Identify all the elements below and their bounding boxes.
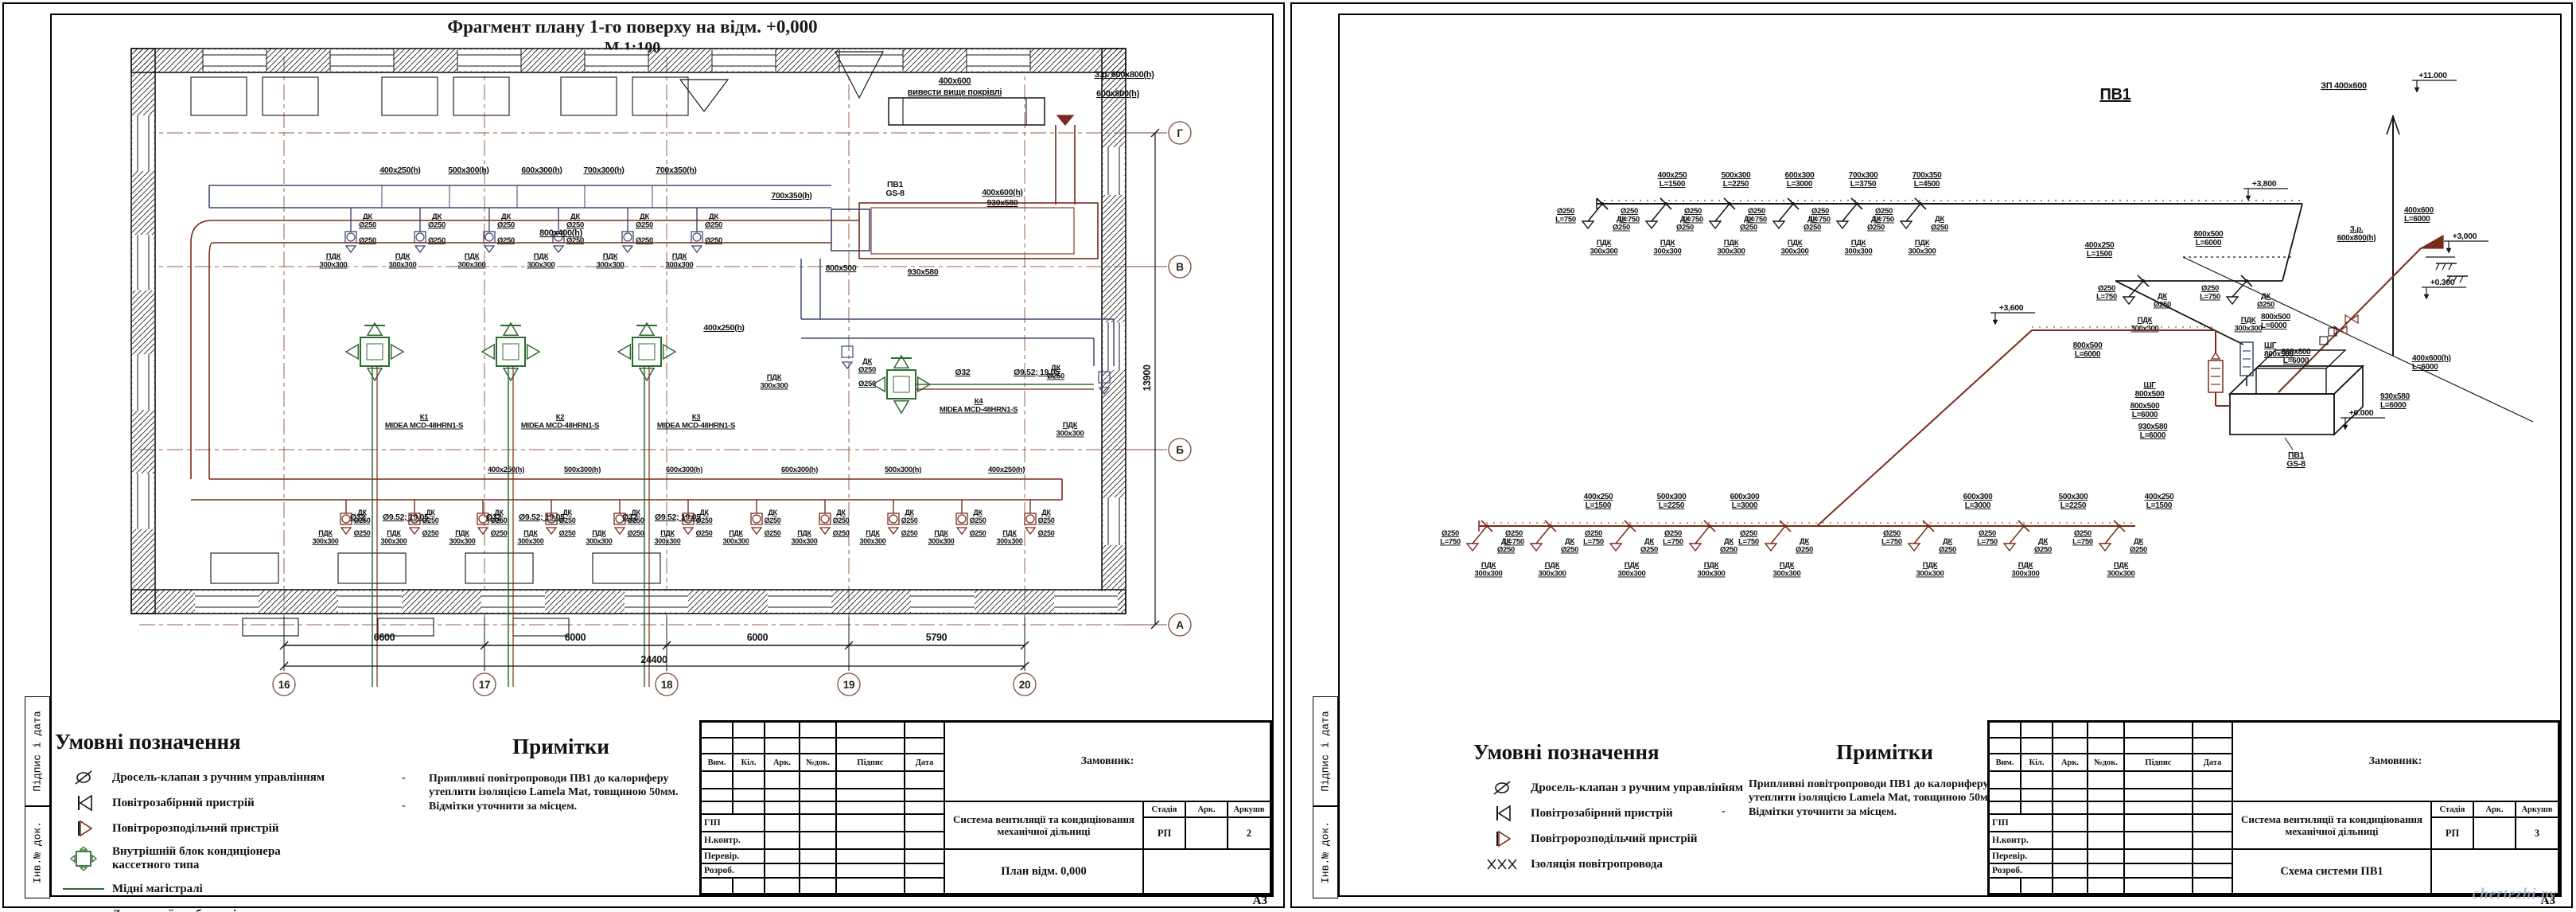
svg-text:Ø250: Ø250 [1038,516,1055,524]
titleblock-cell [2088,832,2124,849]
svg-text:Ø250: Ø250 [2098,284,2115,293]
titleblock-header: Дата [905,754,944,771]
legend-item-label: Повітророзподільчий пристрій [112,822,278,836]
svg-text:ЗП 400x600: ЗП 400x600 [2321,81,2367,91]
titleblock-cell [2021,878,2053,894]
svg-text:ПДК: ПДК [395,252,411,261]
svg-text:400x250: 400x250 [1658,171,1688,180]
svg-text:ПДК: ПДК [1002,529,1017,537]
svg-text:Ø32: Ø32 [486,513,501,522]
note-item: -Відмітки уточнити за місцем. [402,800,720,813]
svg-text:ПДК: ПДК [1704,561,1719,570]
svg-text:GS-8: GS-8 [885,189,905,198]
svg-text:ДК: ДК [862,357,872,366]
svg-text:ПДК: ПДК [592,529,606,537]
titleblock-header: Арк. [765,754,800,771]
svg-text:ПДК: ПДК [318,529,333,537]
svg-text:L=1500: L=1500 [1586,501,1612,510]
svg-text:L=750: L=750 [1683,216,1703,224]
svg-text:Ø250: Ø250 [1875,207,1893,216]
svg-text:800x500: 800x500 [2261,313,2291,322]
svg-text:L=750: L=750 [1663,538,1683,547]
svg-text:Ø250: Ø250 [1748,207,1765,216]
svg-text:ПДК: ПДК [767,373,782,382]
intake-icon [58,791,109,815]
sheet-scheme: Підпис і дата Інв.№ док. ПВ1Ø250L=750ДКØ… [1290,2,2573,908]
titleblock-cell [2053,722,2088,738]
svg-text:MIDEA MCD-48HRN1-S: MIDEA MCD-48HRN1-S [385,422,463,431]
titleblock-cell [2021,801,2053,814]
svg-text:ПДК: ПДК [326,252,341,261]
svg-text:L=750: L=750 [1555,216,1576,224]
svg-text:Ø250: Ø250 [359,221,376,230]
titleblock-cell [2124,771,2193,789]
intake-icon [1477,801,1527,825]
legend-item: Повітророзподільчий пристрій [1473,827,1815,851]
svg-text:ДК: ДК [1800,537,1809,546]
svg-text:300x300: 300x300 [389,261,417,270]
titleblock-cell [836,814,905,832]
svg-text:Ø250: Ø250 [1811,207,1829,216]
svg-text:300x300: 300x300 [1845,247,1873,256]
drawing-canvas: Підпис і дата Інв.№ док. Фрагмент плану … [0,0,2576,912]
svg-text:Ø250: Ø250 [1979,529,1996,538]
titleblock-cell [701,878,733,894]
titleblock-cell [2193,789,2232,801]
titleblock-cell [733,789,765,801]
titleblock-drawing-name: Схема системи ПВ1 [2232,849,2431,894]
titleblock-cell [1989,789,2021,801]
titleblock-cell [2053,771,2088,789]
legend-item: Повітророзподільчий пристрій [55,817,397,840]
titleblock-cell [701,789,733,801]
titleblock-cell [765,738,800,754]
titleblock-cell [2124,814,2193,832]
titleblock-header: Кіл. [2021,754,2053,771]
svg-text:ПДК: ПДК [2018,561,2033,570]
svg-text:К3: К3 [692,413,700,422]
damper-icon [1477,776,1527,800]
svg-text:300x300: 300x300 [655,537,681,545]
svg-text:6000: 6000 [565,632,586,643]
svg-text:700x300(h): 700x300(h) [583,166,624,175]
svg-text:400x250: 400x250 [1584,493,1614,501]
titleblock-cell [2124,849,2193,863]
svg-text:800x500: 800x500 [826,263,857,273]
titleblock-cell [1989,771,2021,789]
svg-text:300x300: 300x300 [597,261,625,270]
titleblock-cell [2124,722,2193,738]
svg-text:300x300: 300x300 [1781,247,1809,256]
titleblock-cell [905,849,944,863]
svg-text:800x500: 800x500 [2130,402,2161,411]
svg-text:MIDEA MCD-48HRN1-S: MIDEA MCD-48HRN1-S [940,406,1018,415]
svg-text:ПДК: ПДК [1063,421,1078,430]
titleblock-cell [2053,801,2088,814]
titleblock-cell [836,722,905,738]
titleblock-cell [800,832,836,849]
svg-text:Ø250: Ø250 [628,529,644,537]
plan-titleblock: Вим.Кіл.Арк.№док.ПідписДатаГІПН.контр.Пе… [699,720,1272,895]
scheme-titleblock: Вим.Кіл.Арк.№док.ПідписДатаГІПН.контр.Пе… [1987,720,2560,895]
legend-item: Повітрозабірний пристрій [55,791,397,815]
svg-text:300x300: 300x300 [586,537,613,545]
svg-text:MIDEA MCD-48HRN1-S: MIDEA MCD-48HRN1-S [521,422,599,431]
svg-text:ДК: ДК [1943,537,1952,546]
titleblock-cell [800,814,836,832]
titleblock-drawing-name: План відм. 0,000 [944,849,1143,894]
titleblock-sheet-header: Арк. [2473,801,2516,817]
svg-text:300x300: 300x300 [1475,570,1503,579]
titleblock-role: Н.контр. [701,832,765,849]
svg-text:К4: К4 [975,397,983,406]
notes-title: Примітки [402,735,720,759]
titleblock-cell [2088,771,2124,789]
note-text: Відмітки уточнити за місцем. [429,800,577,813]
svg-text:ДК: ДК [836,509,846,516]
titleblock-role: Розроб. [701,863,765,878]
svg-text:300x300: 300x300 [1539,570,1566,579]
svg-text:L=750: L=750 [1874,216,1894,224]
svg-text:ПДК: ПДК [465,252,480,261]
svg-text:ПДК: ПДК [387,529,401,537]
svg-text:300x300: 300x300 [1773,570,1801,579]
svg-text:Ø250: Ø250 [2257,301,2274,310]
svg-text:13900: 13900 [1142,364,1153,392]
legend-item-label: Повітрозабірний пристрій [112,797,255,810]
svg-text:L=750: L=750 [1583,538,1604,547]
svg-text:400x600(h): 400x600(h) [2412,354,2451,363]
titleblock-cell [765,814,800,832]
titleblock-role: ГІП [1989,814,2053,832]
titleblock-sheets-header: Аркушв [2516,801,2558,817]
svg-text:500x300(h): 500x300(h) [885,466,921,474]
svg-text:6600: 6600 [374,632,395,643]
svg-text:500x300: 500x300 [1657,493,1687,501]
svg-text:600x300(h): 600x300(h) [666,466,702,474]
svg-text:А: А [1176,619,1184,631]
titleblock-cell [800,722,836,738]
svg-text:300x300: 300x300 [1909,247,1936,256]
svg-text:GS-8: GS-8 [2286,459,2306,469]
titleblock-cell [2053,832,2088,849]
titleblock-cell [2124,738,2193,754]
titleblock-role: Перевір. [1989,849,2053,863]
svg-text:ПДК: ПДК [660,529,675,537]
titleblock-cell [2021,771,2053,789]
svg-text:400x600(h): 400x600(h) [982,188,1022,197]
svg-text:ПДК: ПДК [1923,561,1938,570]
svg-text:Ø250: Ø250 [1931,224,1948,232]
svg-text:300x300: 300x300 [2131,325,2159,333]
svg-text:L=3000: L=3000 [1787,180,1813,189]
titleblock-header: Кіл. [733,754,765,771]
svg-text:ДК: ДК [2038,537,2048,546]
svg-text:L=1500: L=1500 [2146,501,2173,510]
titleblock-header: Вим. [701,754,733,771]
svg-text:300x300: 300x300 [458,261,486,270]
svg-text:Ø250: Ø250 [636,221,653,230]
svg-text:L=4500: L=4500 [1914,180,1940,189]
svg-text:300x300: 300x300 [1590,247,1618,256]
svg-text:Ø250: Ø250 [497,236,515,245]
svg-text:Ø250: Ø250 [1804,224,1821,232]
svg-text:20: 20 [1019,679,1030,691]
insulation-icon [1477,852,1527,876]
svg-text:L=6000: L=6000 [2140,431,2166,440]
svg-text:ПДК: ПДК [672,252,687,261]
svg-text:ДК: ДК [768,509,777,516]
titleblock-cell [836,738,905,754]
svg-text:400x250(h): 400x250(h) [488,466,524,474]
titleblock-cell [765,771,800,789]
svg-text:6000: 6000 [747,632,769,643]
titleblock-cell [765,801,800,814]
legend-title: Умовні позначення [55,730,397,754]
svg-text:ПДК: ПДК [1851,239,1866,247]
svg-text:+0.000: +0.000 [2349,408,2374,418]
svg-text:16: 16 [278,679,290,691]
svg-text:Ø250: Ø250 [1740,224,1757,232]
titleblock-sheets-header: Аркушв [1228,801,1270,817]
svg-text:600x300: 600x300 [1963,493,1994,501]
svg-text:Ø250: Ø250 [428,221,446,230]
svg-text:ДК: ДК [973,509,983,516]
svg-text:Ø250: Ø250 [1867,224,1885,232]
svg-text:L=750: L=750 [1504,538,1524,547]
svg-text:800x500: 800x500 [2194,230,2224,239]
svg-text:ДК: ДК [905,509,914,516]
svg-text:ПДК: ПДК [1545,561,1560,570]
titleblock-cell [765,722,800,738]
titleblock-cell [2088,738,2124,754]
titleblock-cell [733,722,765,738]
svg-text:L=2250: L=2250 [1659,501,1685,510]
svg-text:L=750: L=750 [2072,538,2093,547]
svg-text:300x300: 300x300 [792,537,818,545]
titleblock-cell [2193,878,2232,894]
svg-text:L=750: L=750 [1810,216,1831,224]
svg-text:930x580: 930x580 [2138,423,2169,431]
svg-text:Ø250: Ø250 [1038,529,1055,537]
svg-text:L=6000: L=6000 [2404,215,2430,224]
svg-text:300x300: 300x300 [2107,570,2135,579]
svg-text:вивести вище покрівлі: вивести вище покрівлі [908,88,1002,97]
svg-text:Ø250: Ø250 [833,529,850,537]
svg-text:Ø250: Ø250 [2074,529,2092,538]
watermark: chertezhi.ру [2473,886,2557,903]
svg-text:400x600: 400x600 [939,76,971,86]
svg-text:L=750: L=750 [1619,216,1640,224]
titleblock-cell [905,722,944,738]
svg-text:300x300: 300x300 [1718,247,1745,256]
titleblock-customer: Замовник: [944,722,1270,801]
svg-text:300x300: 300x300 [1618,570,1646,579]
legend-item-label: Дросель-клапан з ручним управлінням [112,771,325,785]
svg-text:600x300(h): 600x300(h) [781,466,818,474]
titleblock-role: ГІП [701,814,765,832]
svg-text:L=750: L=750 [1881,538,1902,547]
svg-text:Ø9.52; 19.05: Ø9.52; 19.05 [1014,368,1060,377]
titleblock-sheet-value [1185,817,1228,849]
svg-text:Ø250: Ø250 [705,236,722,245]
svg-text:ДК: ДК [2158,292,2167,301]
svg-text:17: 17 [479,679,490,691]
svg-text:+3,000: +3,000 [2453,232,2477,241]
svg-text:700x350: 700x350 [1913,171,1943,180]
svg-text:L=1500: L=1500 [2087,250,2113,259]
svg-text:300x300: 300x300 [1916,570,1944,579]
svg-text:L=750: L=750 [2200,293,2220,302]
svg-text:+3,600: +3,600 [1999,303,2024,313]
cassette-icon [58,847,109,871]
titleblock-project: Система вентиляції та кондиціювання меха… [944,801,1143,849]
titleblock-cell [765,878,800,894]
titleblock-sheets-value: 2 [1228,817,1270,849]
legend-item: Дросель-клапан з ручним управлінням [55,766,397,789]
svg-text:ПДК: ПДК [1625,561,1640,570]
titleblock-cell [2088,722,2124,738]
svg-text:ПДК: ПДК [2138,316,2153,325]
svg-text:600x800(h): 600x800(h) [1096,89,1140,99]
svg-text:ПДК: ПДК [1724,239,1739,247]
legend-item-label: Повітрозабірний пристрій [1531,807,1673,820]
titleblock-header: Підпис [2124,754,2193,771]
svg-text:ДК: ДК [699,509,709,516]
svg-text:Ø250: Ø250 [1505,529,1523,538]
svg-text:Ø9.52; 19.05: Ø9.52; 19.05 [519,513,565,522]
titleblock-cell [836,878,905,894]
damper-icon [58,766,109,789]
svg-text:L=6000: L=6000 [2075,350,2101,359]
svg-text:З.р. 600x800(h): З.р. 600x800(h) [1094,70,1154,80]
svg-text:Ø250: Ø250 [765,529,781,537]
legend-item-label: Дренажний трубопровід [112,908,243,912]
titleblock-cell [2053,789,2088,801]
titleblock-header: Арк. [2053,754,2088,771]
svg-text:600x800(h): 600x800(h) [2337,234,2376,243]
titleblock-cell [905,814,944,832]
titleblock-cell [905,789,944,801]
svg-text:930x580: 930x580 [908,267,939,277]
titleblock-cell [800,738,836,754]
svg-text:Ø250: Ø250 [497,221,515,230]
svg-text:Ø250: Ø250 [1740,529,1757,538]
titleblock-role: Н.контр. [1989,832,2053,849]
svg-text:ПДК: ПДК [729,529,743,537]
svg-text:ПДК: ПДК [1597,239,1612,247]
svg-text:300x300: 300x300 [997,537,1023,545]
svg-text:500x300: 500x300 [2059,493,2089,501]
titleblock-cell [2053,814,2088,832]
titleblock-cell [800,801,836,814]
titleblock-cell [2088,849,2124,863]
titleblock-cell [1989,801,2021,814]
svg-text:Ø250: Ø250 [359,236,376,245]
titleblock-cell [701,771,733,789]
titleblock-cell [836,832,905,849]
titleblock-cell [2124,832,2193,849]
titleblock-cell [800,771,836,789]
note-text: Припливні повітропроводи ПВ1 до калорифе… [1749,778,2011,805]
titleblock-role: Перевір. [701,849,765,863]
svg-text:400x250(h): 400x250(h) [988,466,1025,474]
titleblock-cell [2021,722,2053,738]
svg-text:930x580: 930x580 [987,198,1018,208]
titleblock-cell [2088,878,2124,894]
titleblock-cell [2124,801,2193,814]
svg-text:19: 19 [843,679,854,691]
svg-text:500x300(h): 500x300(h) [564,466,601,474]
titleblock-org-cell [1143,849,1270,894]
titleblock-cell [2053,863,2088,878]
svg-text:Ø250: Ø250 [1684,207,1702,216]
svg-text:Ø250: Ø250 [491,529,508,537]
copper-icon [58,877,109,901]
titleblock-cell [701,722,733,738]
svg-text:Ø250: Ø250 [1640,546,1658,555]
titleblock-cell [2053,849,2088,863]
svg-text:600x300(h): 600x300(h) [521,166,562,175]
titleblock-cell [2053,878,2088,894]
svg-text:Ø250: Ø250 [422,529,439,537]
titleblock-cell [765,863,800,878]
svg-text:ПДК: ПДК [1915,239,1930,247]
titleblock-stage-header: Стадія [2431,801,2473,817]
scheme-title: ПВ1 [2099,86,2130,103]
svg-text:Г: Г [1177,127,1183,139]
svg-text:L=6000: L=6000 [2380,401,2407,410]
titleblock-project: Система вентиляції та кондиціювання меха… [2232,801,2431,849]
titleblock-cell [2193,771,2232,789]
titleblock-cell [905,863,944,878]
svg-text:ПДК: ПДК [2114,561,2129,570]
svg-text:Ø250: Ø250 [2034,546,2052,555]
titleblock-cell [733,801,765,814]
svg-text:ШГ: ШГ [2264,341,2277,350]
svg-text:700x350(h): 700x350(h) [656,166,696,175]
titleblock-cell [2193,801,2232,814]
svg-text:300x300: 300x300 [723,537,749,545]
svg-text:ПДК: ПДК [1660,239,1675,247]
titleblock-cell [1989,722,2021,738]
titleblock-cell [2193,849,2232,863]
svg-text:Ø250: Ø250 [696,529,713,537]
titleblock-cell [836,863,905,878]
svg-text:Ø250: Ø250 [833,516,850,524]
svg-text:ПДК: ПДК [1481,561,1496,570]
svg-text:L=750: L=750 [1440,538,1461,547]
svg-text:+11.000: +11.000 [2418,71,2447,80]
titleblock-sheet-value [2473,817,2516,849]
titleblock-cell [2021,738,2053,754]
titleblock-cell [2193,832,2232,849]
titleblock-cell [905,832,944,849]
svg-text:ПДК: ПДК [2241,316,2256,325]
svg-text:Ø9.52; 19.05: Ø9.52; 19.05 [655,513,701,522]
svg-text:Б: Б [1176,444,1184,456]
svg-text:400x600: 400x600 [2404,206,2434,215]
svg-text:300x300: 300x300 [928,537,955,545]
svg-text:800x500: 800x500 [2073,341,2103,350]
svg-text:L=2250: L=2250 [2060,501,2087,510]
svg-text:Ø250: Ø250 [2154,301,2171,310]
svg-text:Ø32: Ø32 [350,513,365,522]
svg-text:З.р.: З.р. [2350,225,2364,234]
svg-text:Ø250: Ø250 [1497,546,1515,555]
svg-text:ПДК: ПДК [1788,239,1803,247]
svg-text:300x300: 300x300 [449,537,476,545]
